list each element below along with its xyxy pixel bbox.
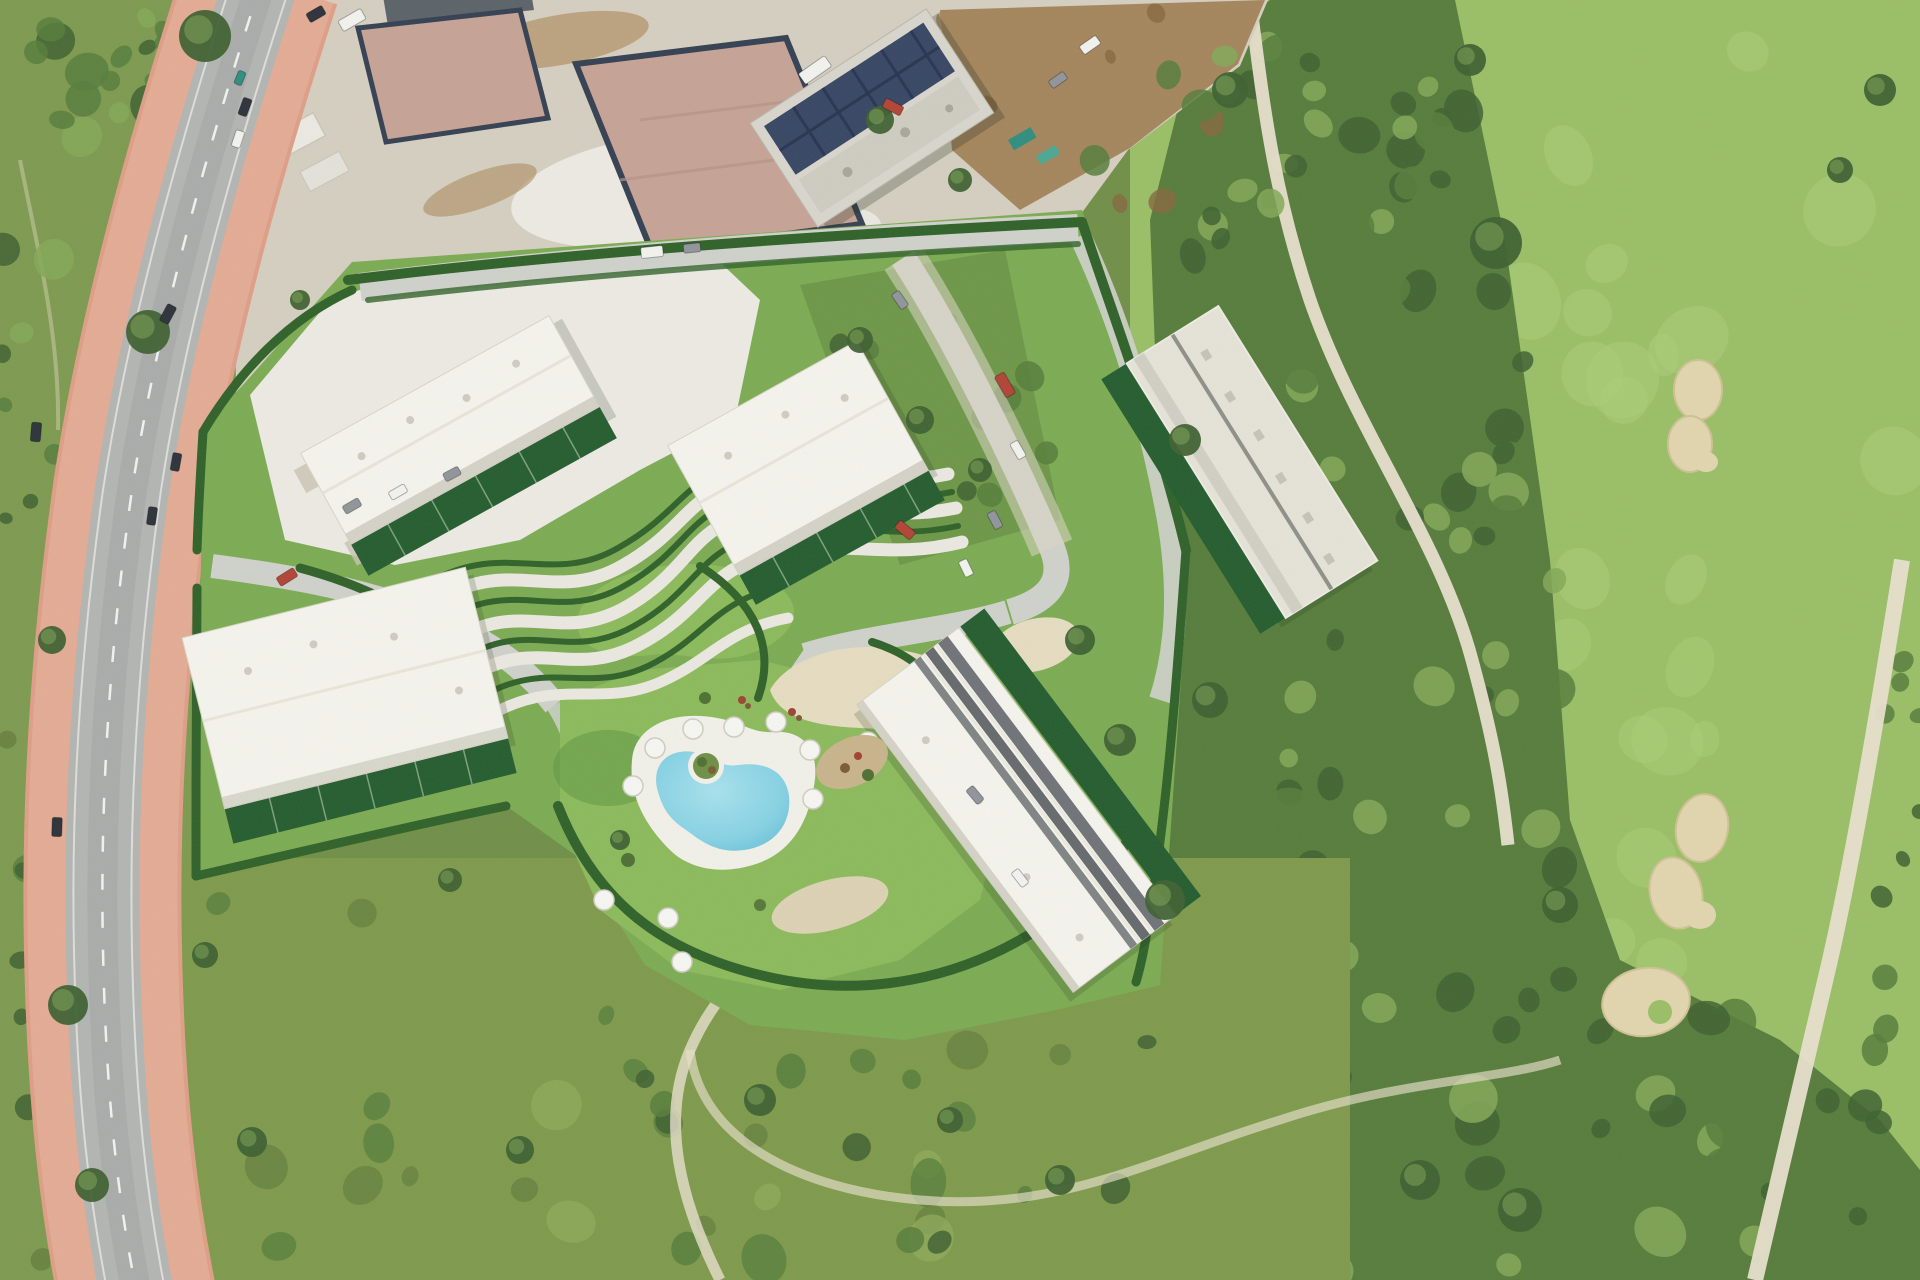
tree-highlight — [909, 409, 924, 424]
tree — [937, 1107, 963, 1133]
tree — [1400, 1160, 1440, 1200]
tree — [1454, 44, 1486, 76]
tree-highlight — [1475, 222, 1504, 251]
pool-umbrella — [724, 717, 744, 737]
tree — [744, 1084, 776, 1116]
tree — [1104, 724, 1136, 756]
tree — [1045, 1165, 1075, 1195]
tree — [75, 1168, 109, 1202]
car — [146, 506, 157, 525]
tree — [1498, 1188, 1542, 1232]
tree — [38, 626, 66, 654]
tree — [1169, 424, 1201, 456]
pool-umbrella — [803, 789, 823, 809]
car — [30, 422, 42, 442]
tree-highlight — [1216, 76, 1236, 96]
pool-umbrella — [594, 890, 614, 910]
tree-highlight — [130, 314, 154, 338]
tree-highlight — [1830, 160, 1844, 174]
tree-highlight — [1068, 628, 1085, 645]
tree — [948, 168, 972, 192]
car — [683, 243, 701, 254]
tree-highlight — [940, 1110, 954, 1124]
foundation-slab-west — [358, 10, 548, 142]
tree-highlight — [41, 629, 56, 644]
aerial-screenshot: Aerial view of a residential development… — [0, 0, 1920, 1280]
tree — [1192, 682, 1228, 718]
tree — [1212, 72, 1248, 108]
car — [640, 245, 663, 258]
tree — [1470, 217, 1522, 269]
tree-highlight — [850, 330, 864, 344]
tree-highlight — [1196, 686, 1216, 706]
pool-umbrella — [658, 908, 678, 928]
flower-bed — [738, 696, 746, 704]
pool-umbrella — [672, 952, 692, 972]
tree — [968, 458, 992, 482]
tree-highlight — [1048, 1168, 1065, 1185]
tree-highlight — [1404, 1164, 1426, 1186]
tree-highlight — [1172, 427, 1190, 445]
tree-highlight — [440, 870, 453, 883]
car — [52, 817, 63, 836]
pool-umbrella — [623, 776, 643, 796]
tree-highlight — [1867, 77, 1885, 95]
tree — [906, 406, 934, 434]
tree-highlight — [195, 945, 209, 959]
tree-highlight — [292, 292, 303, 303]
tree — [237, 1127, 267, 1157]
tree-highlight — [1546, 891, 1566, 911]
veg-patch — [1427, 1200, 1451, 1219]
tree — [847, 327, 873, 353]
pool-umbrella — [683, 719, 703, 739]
tree — [192, 942, 218, 968]
tree-highlight — [184, 15, 213, 44]
tree-highlight — [950, 170, 963, 183]
tree-highlight — [52, 989, 74, 1011]
tree-highlight — [78, 1171, 97, 1190]
tree — [1864, 74, 1896, 106]
tree — [1542, 887, 1578, 923]
pool-umbrella — [766, 712, 786, 732]
aerial-photo-svg: Aerial view of a residential development… — [0, 0, 1920, 1280]
tree — [438, 868, 462, 892]
tree — [506, 1136, 534, 1164]
tree — [1065, 625, 1095, 655]
tree — [179, 10, 231, 62]
tree-highlight — [240, 1130, 257, 1147]
tree — [48, 985, 88, 1025]
tree-highlight — [509, 1139, 524, 1154]
tree — [290, 290, 310, 310]
tree-highlight — [747, 1087, 765, 1105]
tree-highlight — [1149, 884, 1171, 906]
tree-highlight — [612, 832, 623, 843]
tree-highlight — [1107, 727, 1125, 745]
tree-highlight — [1502, 1192, 1526, 1216]
tree — [1145, 880, 1185, 920]
tree — [610, 830, 630, 850]
tree-highlight — [1457, 47, 1475, 65]
tree — [1827, 157, 1853, 183]
tree-highlight — [970, 460, 983, 473]
flower-bed — [788, 708, 796, 716]
pool-umbrella — [645, 738, 665, 758]
pool-umbrella — [800, 740, 820, 760]
tree-highlight — [869, 109, 884, 124]
